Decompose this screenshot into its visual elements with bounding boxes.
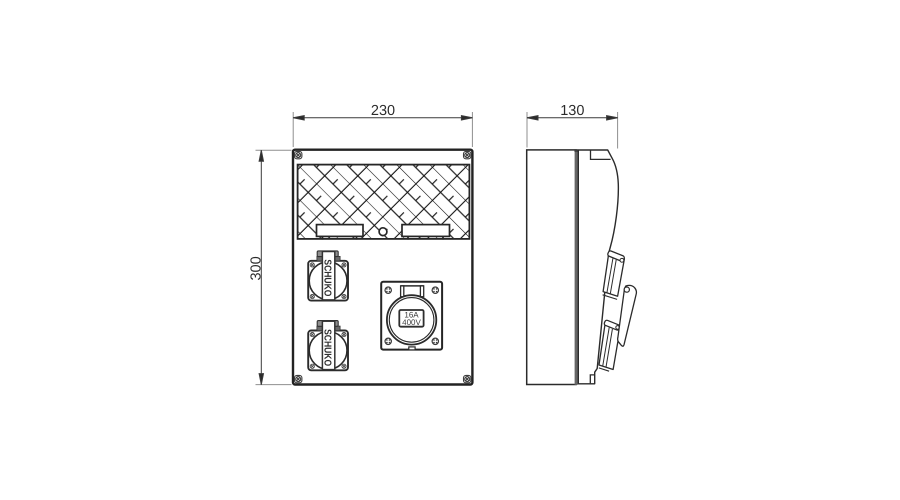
svg-text:230: 230 bbox=[371, 103, 395, 119]
svg-text:300: 300 bbox=[249, 256, 265, 280]
svg-text:400V: 400V bbox=[402, 318, 421, 327]
svg-text:SCHUKO: SCHUKO bbox=[322, 329, 333, 366]
svg-text:130: 130 bbox=[560, 103, 584, 119]
svg-text:SCHUKO: SCHUKO bbox=[322, 259, 333, 296]
